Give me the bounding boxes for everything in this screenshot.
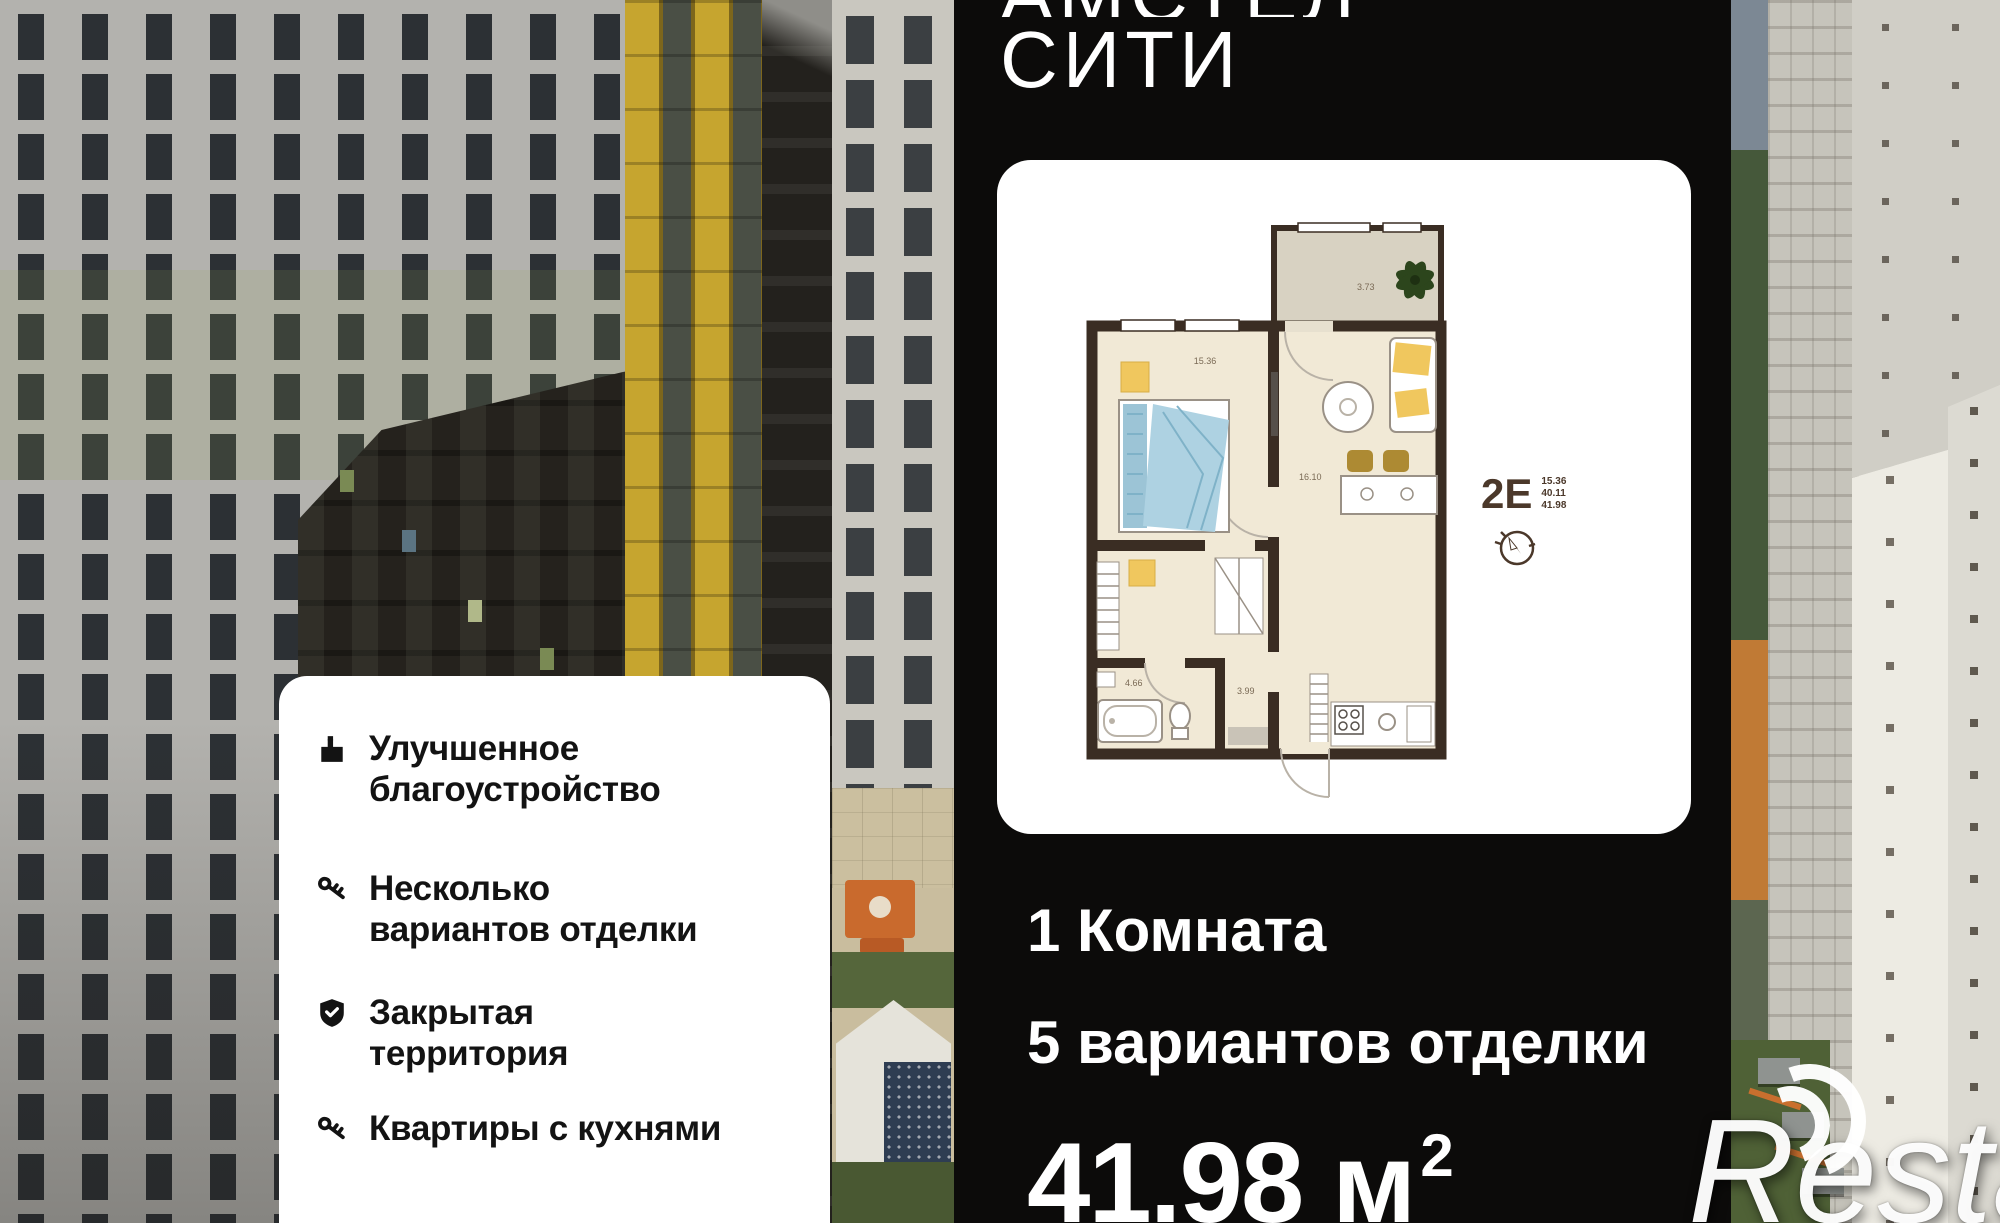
area-value: 41.98 xyxy=(1027,1120,1302,1223)
dresser xyxy=(1129,560,1155,586)
lawn xyxy=(832,1162,955,1223)
courtyard-building xyxy=(832,0,955,788)
lit-window xyxy=(402,530,416,552)
total-area-line: 41.98 м2 xyxy=(1027,1118,1452,1223)
dining-table xyxy=(1341,476,1437,514)
area-unit: м xyxy=(1332,1120,1414,1223)
balcony-area-label: 3.73 xyxy=(1357,282,1375,292)
lawn xyxy=(832,952,955,1008)
key-icon xyxy=(317,873,347,905)
feature-label: Закрытая территория xyxy=(369,992,568,1074)
floorplan-drawing: 3.73 xyxy=(1085,222,1447,822)
landscaping-icon xyxy=(317,733,347,765)
white-building-right xyxy=(1730,0,2000,1223)
feature-label: Улучшенное благоустройство xyxy=(369,728,661,810)
restate-watermark: Restate xyxy=(1688,1098,2000,1223)
feature-item-landscaping: Улучшенное благоустройство xyxy=(317,728,661,810)
blanket xyxy=(1143,404,1229,532)
features-card: Улучшенное благоустройство Несколько вар… xyxy=(279,676,830,1223)
key-icon xyxy=(317,1113,347,1145)
courtyard-strip xyxy=(832,0,955,1223)
apartment-type-block: 2Е 15.36 40.11 41.98 xyxy=(1481,474,1566,514)
promo-banner: АМСТЕЛ СИТИ 3.73 xyxy=(0,0,2000,1223)
shield-check-icon xyxy=(317,997,347,1029)
feature-line: вариантов отделки xyxy=(369,909,697,950)
lit-window xyxy=(540,648,554,670)
feature-item-security: Закрытая территория xyxy=(317,992,568,1074)
area-superscript: 2 xyxy=(1420,1122,1451,1189)
bathroom-area-label: 4.66 xyxy=(1125,678,1143,688)
fridge xyxy=(1407,706,1431,742)
doormat xyxy=(1228,727,1268,745)
toilet xyxy=(1170,703,1190,729)
chair xyxy=(1383,450,1409,472)
living-area-label: 16.10 xyxy=(1299,472,1322,482)
area-breakdown: 15.36 40.11 41.98 xyxy=(1541,476,1566,512)
area-line: 40.11 xyxy=(1541,488,1566,500)
area-line: 41.98 xyxy=(1541,500,1566,512)
feature-line: территория xyxy=(369,1033,568,1074)
chair xyxy=(1347,450,1373,472)
courtyard-pavement xyxy=(832,788,955,888)
floorplan-card: 3.73 xyxy=(997,160,1691,834)
lit-window xyxy=(468,600,482,622)
shelf xyxy=(1097,562,1119,650)
feature-line: Несколько xyxy=(369,868,697,909)
feature-label: Квартиры с кухнями xyxy=(369,1108,721,1149)
feature-label: Несколько вариантов отделки xyxy=(369,868,697,950)
bedroom-area-label: 15.36 xyxy=(1194,356,1217,366)
feature-item-finishes: Несколько вариантов отделки xyxy=(317,868,697,950)
cushion xyxy=(1393,342,1432,376)
info-panel: АМСТЕЛ СИТИ 3.73 xyxy=(954,0,1731,1223)
feature-line: благоустройство xyxy=(369,769,661,810)
rooms-count-line: 1 Комната xyxy=(1027,896,1326,965)
hall-area-label: 3.99 xyxy=(1237,686,1255,696)
feature-line: Улучшенное xyxy=(369,728,661,769)
feature-item-kitchens: Квартиры с кухнями xyxy=(317,1108,721,1149)
compass-icon xyxy=(1489,520,1541,572)
complex-title-line2: СИТИ xyxy=(1000,20,1242,100)
feature-line: Квартиры с кухнями xyxy=(369,1108,721,1149)
nightstand xyxy=(1121,362,1149,392)
cushion xyxy=(1395,388,1430,418)
tent-wall xyxy=(884,1062,951,1168)
playground-structure xyxy=(845,880,915,938)
lit-window xyxy=(340,470,354,492)
finish-options-line: 5 вариантов отделки xyxy=(1027,1008,1649,1077)
round-table xyxy=(1323,382,1373,432)
tv xyxy=(1271,372,1278,436)
feature-line: Закрытая xyxy=(369,992,568,1033)
sink xyxy=(1097,672,1115,687)
area-line: 15.36 xyxy=(1541,476,1566,488)
apartment-type-label: 2Е xyxy=(1481,474,1532,514)
